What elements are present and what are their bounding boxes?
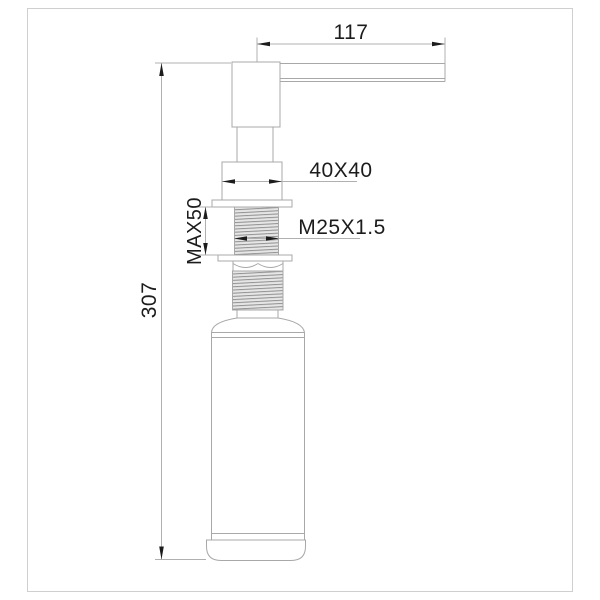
callout-m25x1-5-label: M25X1.5 <box>298 216 386 239</box>
dimension-arrow-left <box>257 42 270 47</box>
washer <box>218 255 292 261</box>
dispenser-assembly <box>207 62 446 561</box>
hex-nut <box>233 261 283 271</box>
dimension-arrow-right <box>432 42 445 47</box>
bottle-body <box>212 333 305 541</box>
pump-head <box>232 62 280 127</box>
escutcheon-flange <box>212 200 292 207</box>
spout <box>280 64 445 82</box>
bottle-collar <box>237 310 278 318</box>
technical-drawing-canvas: 117 307 40X40 MAX50 M25X1.5 <box>0 0 600 600</box>
sheet-border <box>28 9 573 592</box>
lower-thread-shank <box>233 271 284 310</box>
dimension-117-label: 117 <box>334 21 369 44</box>
neck <box>237 127 273 162</box>
dimension-117: 117 <box>257 21 445 64</box>
dimension-arrow-up <box>159 63 164 76</box>
dimension-max50-label: MAX50 <box>184 197 206 265</box>
dimension-307-label: 307 <box>138 282 161 319</box>
dimension-arrow-down <box>159 547 164 560</box>
dimension-307: 307 <box>138 63 231 560</box>
bottle-shoulder <box>212 318 305 338</box>
soap-dispenser-drawing: 117 307 40X40 MAX50 M25X1.5 <box>0 0 600 600</box>
bottle-base <box>207 540 306 561</box>
dimension-40x40-label: 40X40 <box>309 159 372 182</box>
upper-thread-shank <box>235 207 279 255</box>
